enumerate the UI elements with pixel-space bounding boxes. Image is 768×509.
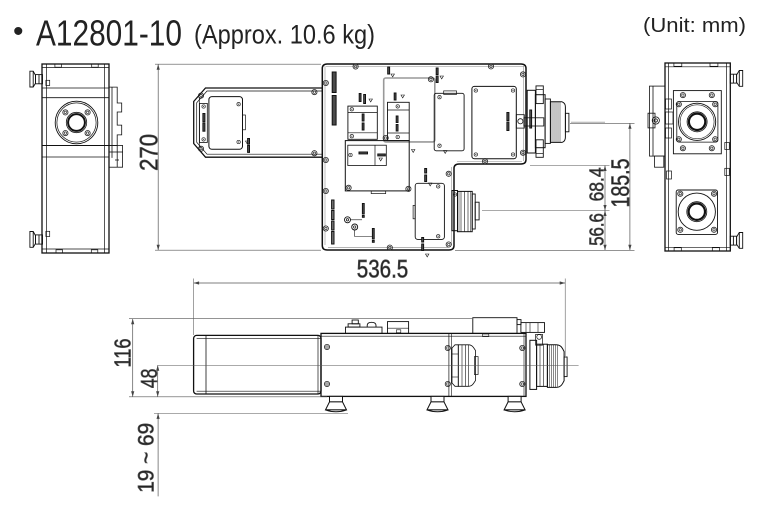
svg-text:56.6: 56.6 — [585, 213, 608, 246]
svg-text:536.5: 536.5 — [357, 256, 409, 284]
svg-text:270: 270 — [135, 134, 163, 171]
svg-text:185.5: 185.5 — [607, 159, 635, 208]
svg-text:A12801-10: A12801-10 — [36, 13, 182, 53]
svg-text:(Unit: mm): (Unit: mm) — [643, 14, 746, 37]
svg-text:48: 48 — [136, 369, 162, 389]
svg-text:(Approx. 10.6 kg): (Approx. 10.6 kg) — [194, 20, 375, 50]
svg-text:•: • — [13, 15, 24, 48]
svg-text:68.4: 68.4 — [585, 167, 608, 201]
svg-text:19 ~ 69: 19 ~ 69 — [133, 423, 158, 493]
svg-text:116: 116 — [110, 339, 136, 368]
